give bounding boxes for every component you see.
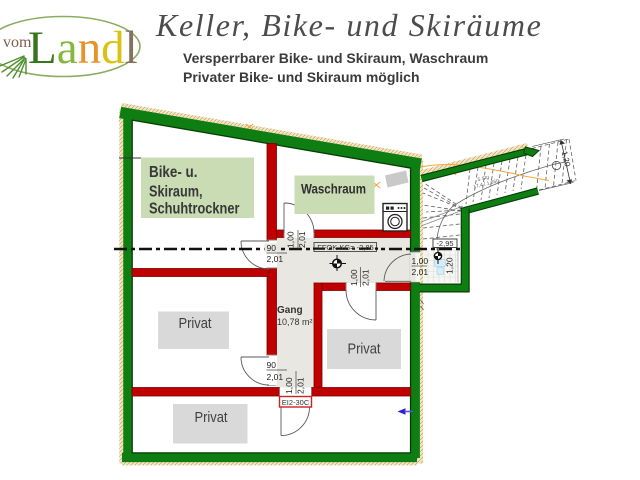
svg-text:Waschraum: Waschraum [301, 182, 366, 197]
svg-text:2,01: 2,01 [412, 267, 429, 277]
svg-text:Privat: Privat [179, 315, 213, 332]
svg-text:-2,95: -2,95 [436, 239, 453, 248]
svg-text:1,20: 1,20 [445, 257, 455, 274]
svg-text:2,01: 2,01 [267, 254, 284, 264]
svg-text:1,00: 1,00 [286, 231, 296, 248]
svg-text:2,01: 2,01 [297, 231, 307, 248]
svg-text:2,01: 2,01 [296, 377, 306, 394]
svg-text:2,01: 2,01 [267, 372, 284, 382]
svg-text:Privater Bike- und Skiraum mög: Privater Bike- und Skiraum möglich [183, 69, 420, 85]
svg-text:Privat: Privat [348, 341, 382, 358]
svg-text:Schuhtrockner: Schuhtrockner [149, 201, 240, 218]
svg-text:Gang: Gang [277, 305, 303, 316]
svg-text:Keller, Bike- und Skiräume: Keller, Bike- und Skiräume [155, 7, 542, 43]
svg-text:1,00: 1,00 [349, 269, 359, 286]
svg-text:Skiraum,: Skiraum, [149, 184, 203, 201]
svg-text:Versperrbarer Bike- und Skirau: Versperrbarer Bike- und Skiraum, Waschra… [183, 50, 488, 66]
svg-text:Privat: Privat [195, 409, 229, 426]
svg-text:90: 90 [267, 360, 277, 370]
svg-text:1,00: 1,00 [284, 377, 294, 394]
svg-text:1,00: 1,00 [412, 256, 429, 266]
svg-text:10,78 m²: 10,78 m² [277, 317, 313, 327]
svg-text:Landl: Landl [28, 22, 138, 74]
svg-text:2,01: 2,01 [361, 269, 371, 286]
svg-text:FFOK KG= -2,85: FFOK KG= -2,85 [317, 243, 373, 252]
svg-text:1,20: 1,20 [560, 150, 573, 168]
svg-text:EI2-30C: EI2-30C [282, 398, 310, 407]
svg-text:Bike- u.: Bike- u. [149, 164, 198, 181]
svg-text:90: 90 [267, 243, 277, 253]
